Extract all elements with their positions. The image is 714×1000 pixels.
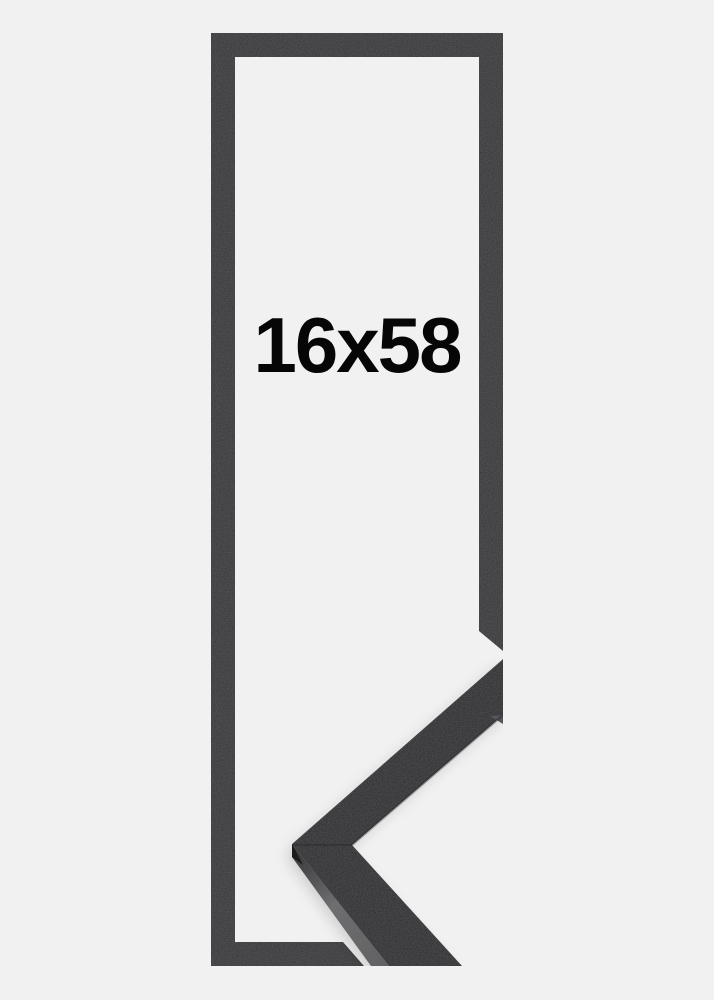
corner-front-face xyxy=(292,659,503,966)
corner-edge-highlight xyxy=(292,659,503,844)
frame-size-label: 16x58 xyxy=(211,299,503,391)
product-image: 16x58 xyxy=(0,0,714,1000)
frame-corner-sample-icon xyxy=(292,659,503,966)
frame-graphic xyxy=(0,0,714,1000)
